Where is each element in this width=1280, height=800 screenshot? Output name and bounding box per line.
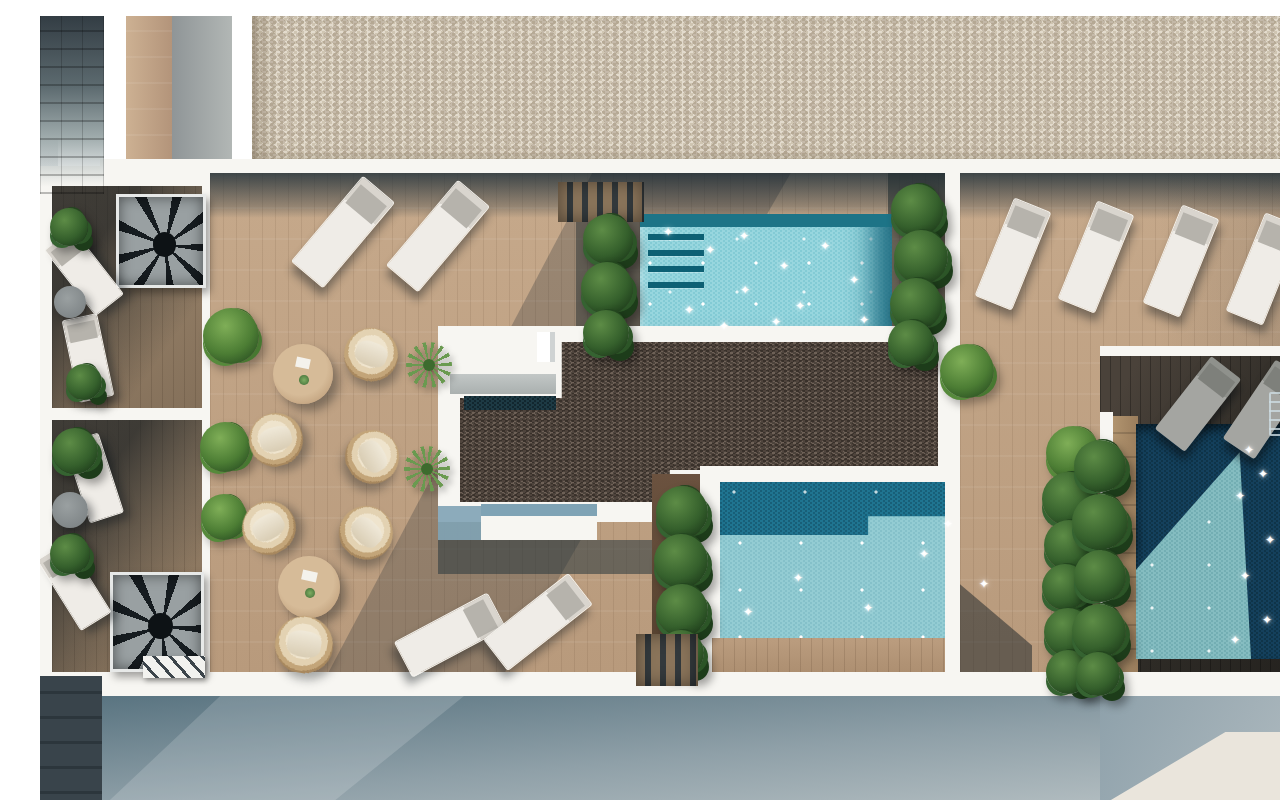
water-sparkle: ✦: [1264, 534, 1276, 546]
water-sparkle: ✦: [918, 548, 930, 560]
poolside-plant: [654, 534, 708, 588]
deck-bush: [203, 308, 259, 364]
partition-wall: [1100, 346, 1280, 356]
water-sparkle: ✦: [704, 244, 716, 256]
poolside-plant: [656, 486, 708, 538]
shaded-gravel-band: [464, 396, 556, 410]
balcony-plant: [50, 534, 90, 574]
poolside-plant: [894, 230, 948, 284]
water-sparkle: ✦: [1243, 444, 1255, 456]
poolside-plant: [581, 262, 633, 314]
pool-step: [648, 250, 704, 256]
round-dining-table: [273, 344, 333, 404]
upper-gravel-roof: [252, 16, 1280, 161]
water-sparkle: ✦: [858, 314, 870, 326]
low-wall: [481, 504, 597, 540]
facade-planks: [40, 676, 102, 800]
balcony-plant: [50, 208, 88, 246]
wood-steps-lower: [636, 634, 698, 686]
spiral-staircase-upper: [116, 194, 206, 288]
wall-shadow: [438, 506, 483, 540]
water-sparkle: ✦: [1234, 490, 1246, 502]
water-sparkle: ✦: [770, 316, 782, 328]
yucca-plant: [406, 342, 452, 388]
concrete-ledge: [450, 374, 556, 394]
poolside-plant: [1074, 440, 1126, 492]
poolside-plant: [1074, 550, 1126, 602]
water-sparkle: ✦: [1261, 614, 1273, 626]
top-wood-walkway: [126, 16, 172, 162]
poolside-plant: [1072, 494, 1128, 550]
building-corner: [40, 16, 104, 194]
water-sparkle: ✦: [1257, 468, 1269, 480]
deck-bush: [201, 494, 247, 540]
water-sparkle: ✦: [792, 572, 804, 584]
terrace-divider-wall: [945, 173, 960, 674]
water-sparkle: ✦: [848, 274, 860, 286]
rooftop-render: ✦✦✦✦✦✦✦✦✦✦✦✦✦✦✦✦✦✦✦✦✦✦✦✦✦: [40, 16, 1280, 800]
water-sparkle: ✦: [683, 304, 695, 316]
water-sparkle: ✦: [718, 320, 730, 332]
poolside-plant: [891, 184, 943, 236]
balcony-plant: [52, 428, 98, 474]
pool-step: [648, 266, 704, 272]
water-sparkle: ✦: [862, 602, 874, 614]
deck-bush: [200, 422, 250, 472]
pool-step: [648, 234, 704, 240]
poolside-plant: [583, 310, 629, 356]
water-sparkle: ✦: [778, 260, 790, 272]
water-sparkle: ✦: [738, 230, 750, 242]
water-sparkle: ✦: [794, 300, 806, 312]
deck-bush: [940, 344, 994, 398]
water-sparkle: ✦: [819, 240, 831, 252]
water-sparkle: ✦: [978, 578, 990, 590]
stair-landing: [143, 656, 205, 678]
rooftop-unit: [537, 332, 555, 362]
ground-below-left: [40, 696, 1100, 800]
water-sparkle: ✦: [742, 606, 754, 618]
water-sparkle: ✦: [1229, 634, 1241, 646]
balcony-plant: [66, 364, 102, 400]
poolside-plant: [1076, 652, 1120, 696]
water-sparkle: ✦: [1239, 570, 1251, 582]
pool-step: [648, 282, 704, 288]
poolside-plant: [888, 320, 934, 366]
water-sparkle: ✦: [662, 226, 674, 238]
poolside-plant: [1072, 604, 1126, 658]
round-dining-table: [278, 556, 340, 618]
balcony-side-table: [52, 492, 88, 528]
poolside-plant: [583, 214, 633, 264]
pool-ladder: [1269, 392, 1280, 436]
water-sparkle: ✦: [942, 518, 954, 530]
ground-below-right: [1100, 696, 1280, 800]
top-concrete-strip: [172, 16, 232, 162]
water-sparkle: ✦: [739, 284, 751, 296]
yucca-plant: [404, 446, 450, 492]
balcony-side-table: [54, 286, 86, 318]
poolside-plant: [656, 584, 708, 636]
parapet-top: [100, 159, 1280, 174]
